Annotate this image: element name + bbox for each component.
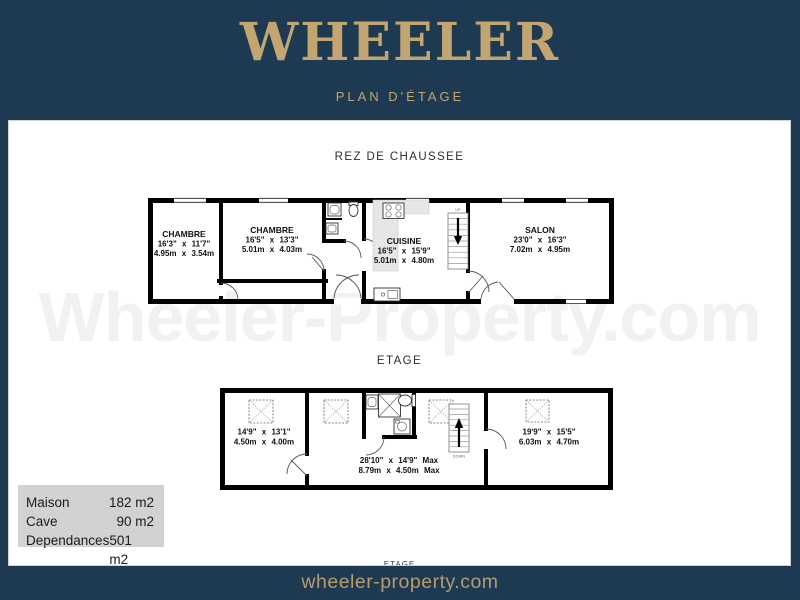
legend-row-dependances: Dependances 501 m2	[26, 531, 154, 566]
area-legend: Maison 182 m2 Cave 90 m2 Dependances 501…	[18, 485, 164, 547]
legend-row-maison: Maison 182 m2	[26, 493, 154, 512]
sink-icon	[366, 395, 378, 409]
shower-icon	[379, 394, 401, 417]
svg-text:8.79m x 4.50m Max: 8.79m x 4.50m Max	[358, 466, 440, 475]
stairs-icon: UP	[448, 208, 468, 269]
kitchen-sink-icon	[374, 288, 400, 301]
svg-text:CUISINE: CUISINE	[387, 236, 422, 246]
room-label-upper-right: 19'9" x 15'5" 6.03m x 4.70m	[519, 428, 579, 447]
svg-text:16'5" x 13'3": 16'5" x 13'3"	[246, 236, 299, 245]
svg-text:5.01m x 4.80m: 5.01m x 4.80m	[374, 256, 434, 265]
svg-text:16'5" x 15'9": 16'5" x 15'9"	[378, 247, 431, 256]
svg-text:28'10" x 14'9" Max: 28'10" x 14'9" Max	[360, 456, 439, 465]
svg-text:7.02m x 4.95m: 7.02m x 4.95m	[510, 245, 570, 254]
svg-text:UP: UP	[455, 208, 461, 212]
svg-text:4.95m x 3.54m: 4.95m x 3.54m	[154, 249, 214, 258]
footer-site-url: wheeler-property.com	[301, 571, 498, 593]
ground-floor-plan: UP CHAMBRE 16'3" x 11'7" 4.95m x 3.54m C…	[146, 196, 616, 308]
toilet-icon	[399, 395, 416, 407]
svg-text:4.50m x 4.00m: 4.50m x 4.00m	[234, 438, 294, 447]
floorplan-panel: Wheeler-Property.com REZ DE CHAUSSEE	[8, 120, 791, 566]
legend-value: 501 m2	[109, 531, 154, 566]
room-label-chambre-1: CHAMBRE 16'3" x 11'7" 4.95m x 3.54m	[154, 229, 214, 258]
svg-text:DOWN: DOWN	[453, 455, 465, 459]
hob-icon	[383, 203, 404, 219]
legend-label: Cave	[26, 512, 58, 531]
room-label-upper-middle: 28'10" x 14'9" Max 8.79m x 4.50m Max	[358, 456, 440, 475]
washbasin-icon	[326, 223, 338, 234]
legend-value: 90 m2	[116, 512, 154, 531]
svg-text:5.01m x 4.03m: 5.01m x 4.03m	[242, 245, 302, 254]
page-title: PLAN D'ÉTAGE	[0, 89, 800, 104]
stairs-icon: DOWN	[449, 404, 469, 459]
legend-label: Dependances	[26, 531, 109, 566]
svg-text:SALON: SALON	[525, 225, 555, 235]
room-label-chambre-2: CHAMBRE 16'5" x 13'3" 5.01m x 4.03m	[242, 225, 302, 254]
svg-text:16'3" x 11'7": 16'3" x 11'7"	[158, 240, 211, 249]
svg-text:19'9" x 15'5": 19'9" x 15'5"	[523, 428, 576, 437]
svg-text:CHAMBRE: CHAMBRE	[250, 225, 294, 235]
legend-label: Maison	[26, 493, 70, 512]
legend-row-cave: Cave 90 m2	[26, 512, 154, 531]
sink-icon	[328, 203, 341, 216]
ground-floor-heading: REZ DE CHAUSSEE	[9, 151, 790, 163]
room-label-upper-left: 14'9" x 13'1" 4.50m x 4.00m	[234, 428, 294, 447]
toilet-icon	[349, 202, 358, 217]
footer-bar: wheeler-property.com	[0, 566, 800, 600]
legend-value: 182 m2	[109, 493, 154, 512]
svg-text:CHAMBRE: CHAMBRE	[162, 229, 206, 239]
washing-machine-icon	[394, 419, 410, 434]
upper-floor-heading: ETAGE	[9, 355, 790, 367]
svg-text:23'0" x 16'3": 23'0" x 16'3"	[514, 236, 567, 245]
upper-floor-plan: DOWN 14'9" x 13'1" 4.50m x 4.00m 28'10" …	[218, 384, 616, 494]
svg-text:6.03m x 4.70m: 6.03m x 4.70m	[519, 438, 579, 447]
brand-title: WHEELER	[0, 12, 800, 73]
svg-text:14'9" x 13'1": 14'9" x 13'1"	[238, 428, 291, 437]
room-label-salon: SALON 23'0" x 16'3" 7.02m x 4.95m	[510, 225, 570, 254]
